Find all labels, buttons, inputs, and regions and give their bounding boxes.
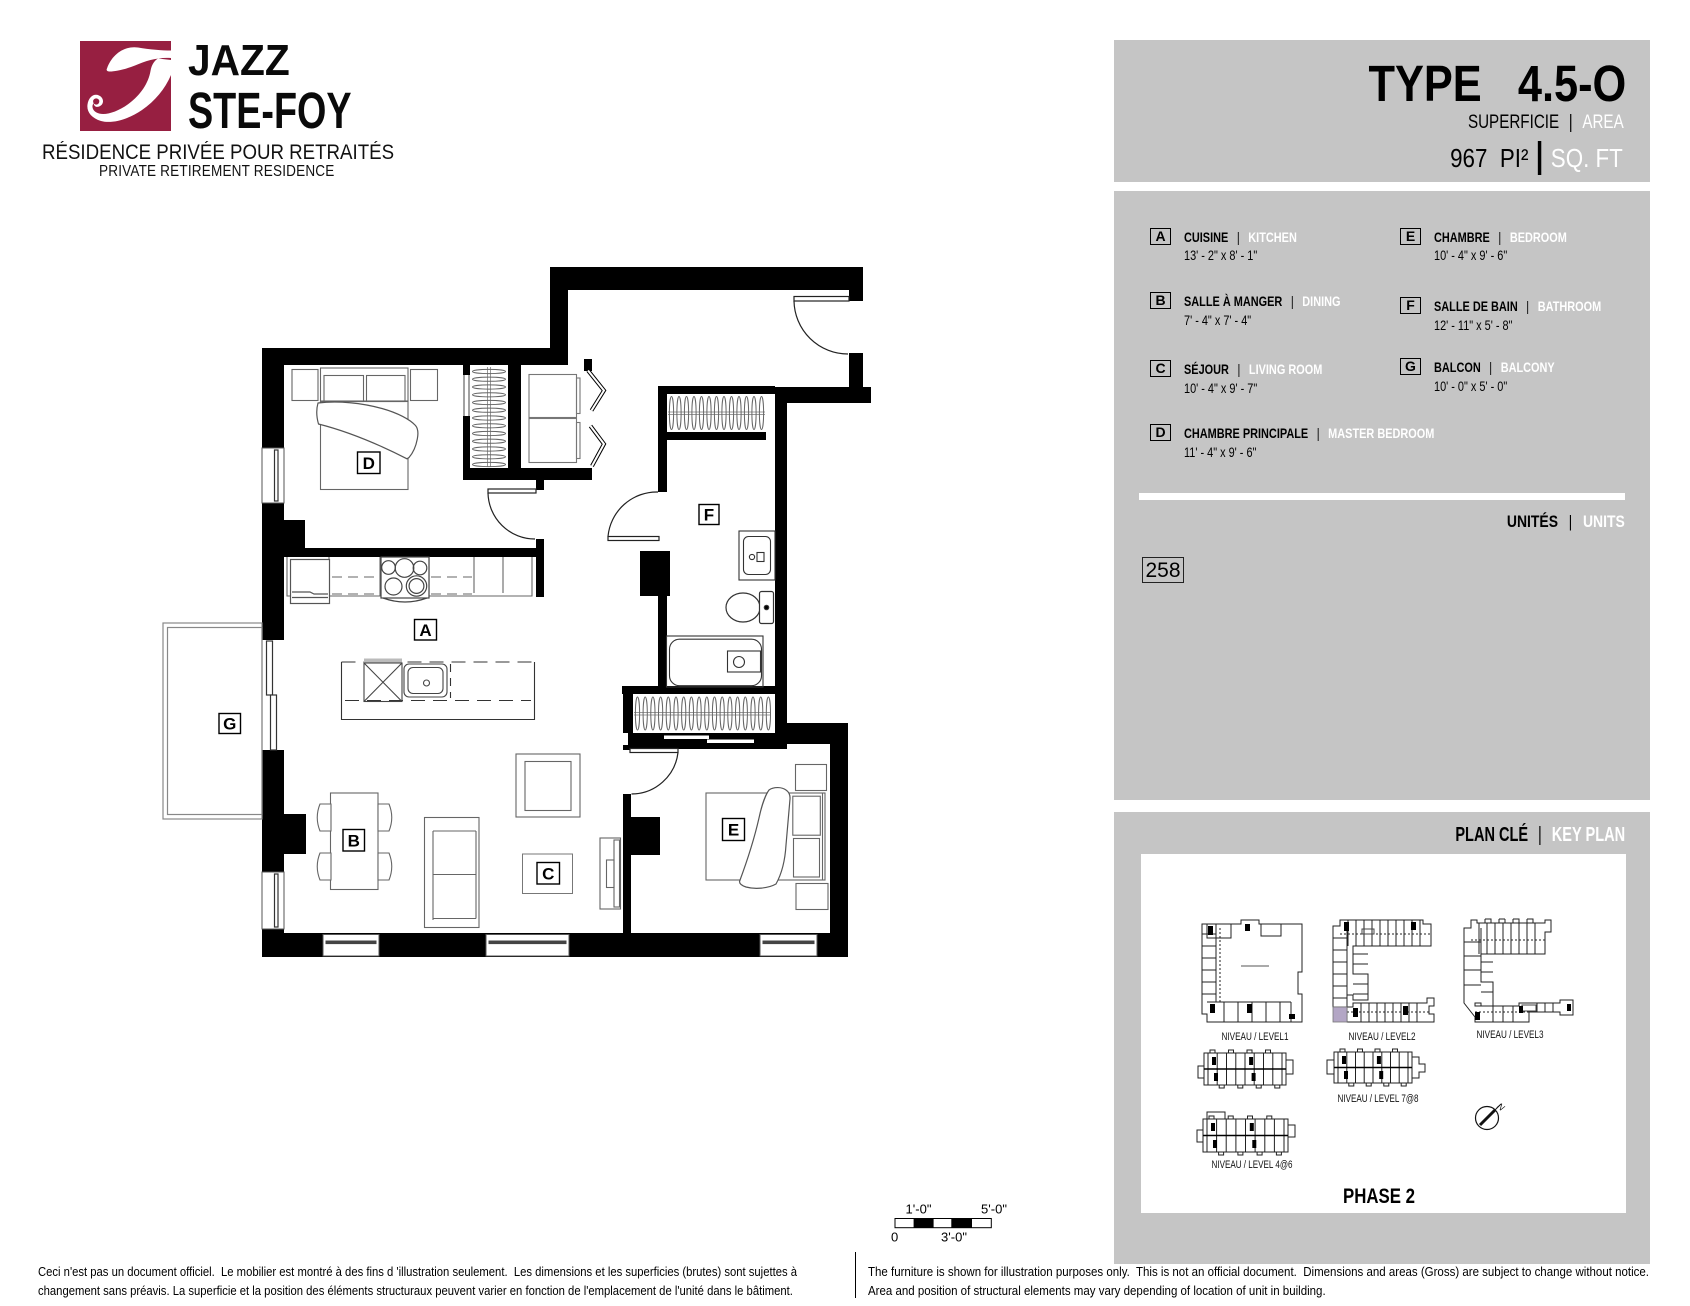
svg-text:D: D	[363, 454, 375, 473]
svg-text:NIVEAU / LEVEL1: NIVEAU / LEVEL1	[1222, 1031, 1289, 1043]
svg-text:PHASE 2: PHASE 2	[1343, 1184, 1415, 1208]
svg-text:G: G	[223, 715, 236, 734]
svg-text:0: 0	[891, 1230, 898, 1245]
svg-text:F: F	[704, 506, 714, 525]
svg-text:3'-0": 3'-0"	[941, 1230, 967, 1245]
svg-text:NIVEAU / LEVEL2: NIVEAU / LEVEL2	[1349, 1031, 1416, 1043]
svg-text:5'-0": 5'-0"	[981, 1202, 1007, 1217]
svg-text:C: C	[542, 864, 554, 883]
svg-text:B: B	[348, 831, 360, 850]
svg-text:NIVEAU / LEVEL3: NIVEAU / LEVEL3	[1477, 1029, 1544, 1041]
svg-text:A: A	[419, 621, 431, 640]
svg-text:1'-0": 1'-0"	[906, 1202, 932, 1217]
svg-text:NIVEAU / LEVEL 7@8: NIVEAU / LEVEL 7@8	[1338, 1093, 1419, 1105]
svg-text:E: E	[728, 821, 739, 840]
svg-text:NIVEAU / LEVEL 4@6: NIVEAU / LEVEL 4@6	[1212, 1159, 1293, 1171]
